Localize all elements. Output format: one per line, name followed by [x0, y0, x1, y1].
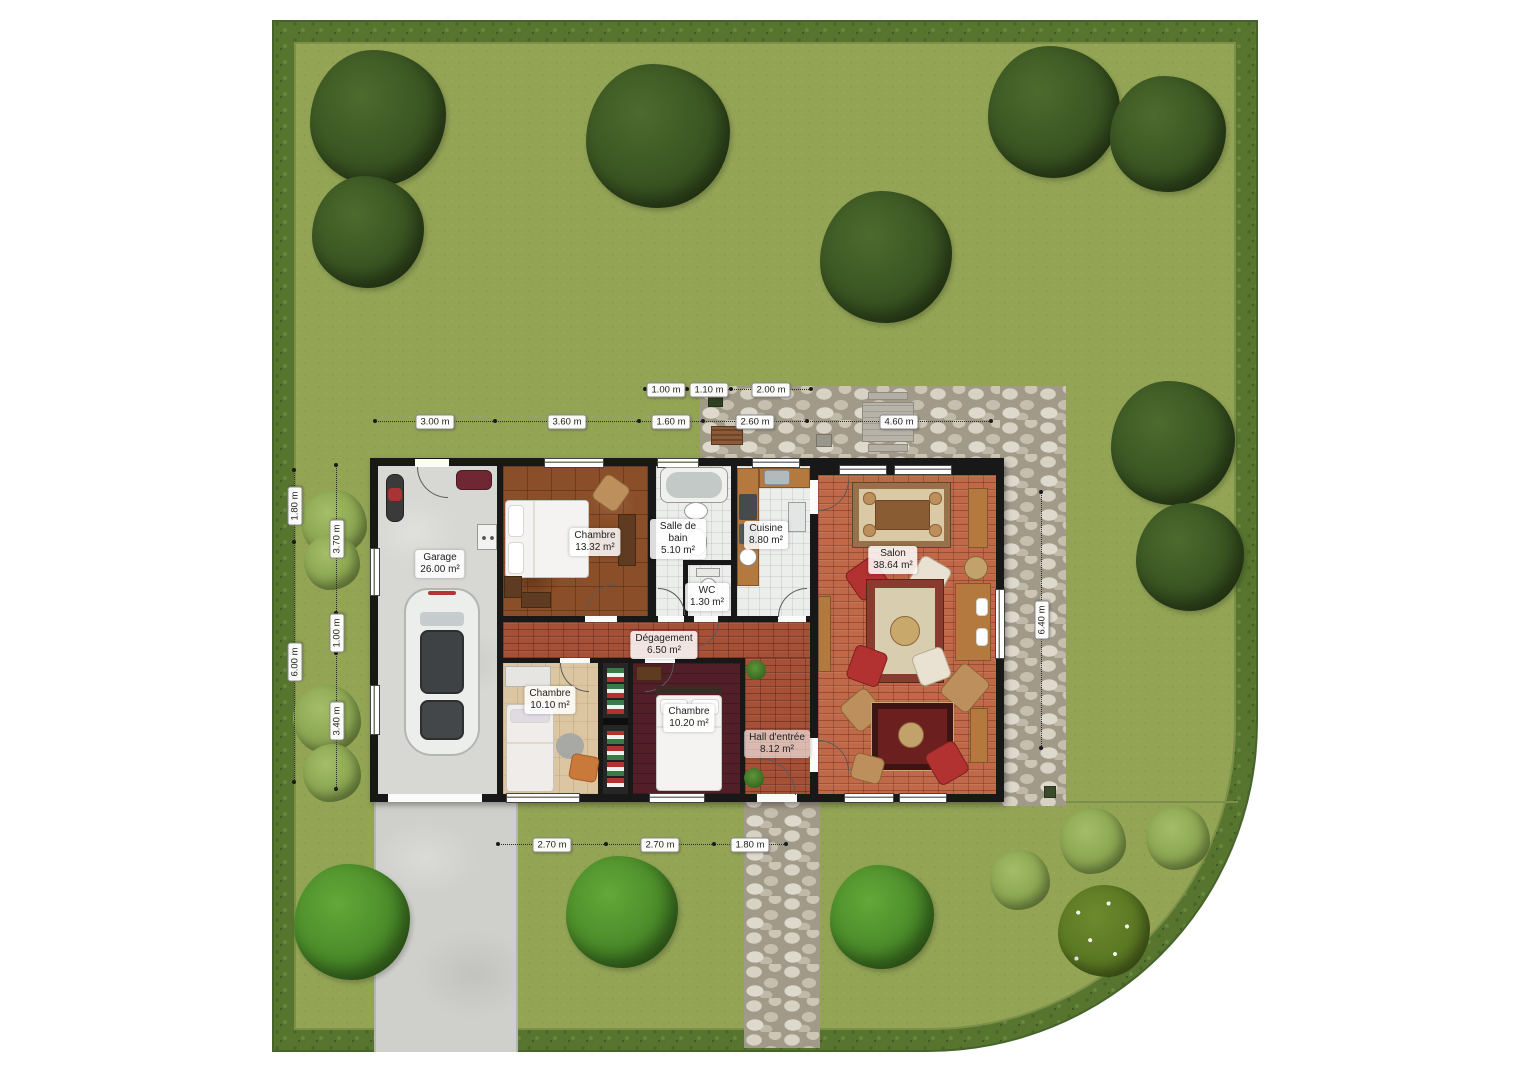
- dim-tick: [1039, 490, 1043, 494]
- pouf-chambre-2: [568, 753, 600, 783]
- salon-console-top-right: [968, 488, 988, 548]
- window-garage-left-2: [371, 686, 379, 734]
- car-taillight: [428, 591, 456, 595]
- bush: [1060, 808, 1126, 874]
- dim-tick: [637, 419, 641, 423]
- wardrobe-divider: [603, 718, 628, 725]
- bush: [303, 744, 361, 802]
- room-name: Salle de bain: [655, 521, 701, 545]
- salon-sofa-bench: [955, 583, 991, 661]
- bush: [990, 850, 1050, 910]
- dimension-label: 2.00 m: [751, 383, 790, 398]
- room-label-chambre-3: Chambre 10.20 m²: [663, 704, 714, 732]
- room-label-salon: Salon 38.64 m²: [868, 546, 917, 574]
- window-garage-left-1: [371, 549, 379, 595]
- headboard-chambre-3: [656, 686, 722, 694]
- door-gap-chambre1: [585, 616, 617, 622]
- room-area: 8.12 m²: [749, 744, 805, 756]
- dim-tick: [604, 842, 608, 846]
- dimension-label: 4.60 m: [879, 415, 918, 430]
- window-bath-top: [658, 459, 698, 467]
- bush: [293, 685, 361, 753]
- dimension-label: 1.00 m: [646, 383, 685, 398]
- terrace-right: [1000, 386, 1066, 806]
- salon-dining-table: [875, 500, 930, 530]
- room-label-chambre-2: Chambre 10.10 m²: [524, 686, 575, 714]
- mat-chambre-1b: [521, 592, 551, 608]
- room-area: 6.50 m²: [635, 645, 692, 657]
- dim-tick: [809, 387, 813, 391]
- room-area: 13.32 m²: [574, 542, 615, 554]
- bath-sink: [684, 502, 708, 520]
- dim-tick: [1039, 746, 1043, 750]
- garage-storage-red: [456, 470, 492, 490]
- dimension-label: 2.70 m: [532, 838, 571, 853]
- room-label-degagement: Dégagement 6.50 m²: [630, 631, 697, 659]
- dim-tick: [496, 842, 500, 846]
- room-name: Chambre: [668, 706, 709, 718]
- dresser-chambre-1: [618, 514, 636, 566]
- car-roof-glass: [420, 630, 464, 694]
- window-chambre2-bottom: [507, 794, 579, 802]
- room-label-salle-de-bain: Salle de bain 5.10 m²: [650, 519, 706, 559]
- window-chambre1-top: [545, 459, 603, 467]
- door-gap-salon-bottom: [810, 738, 818, 772]
- window-cuisine-top: [753, 459, 799, 467]
- wc-wall-top: [683, 560, 731, 565]
- room-label-chambre-1: Chambre 13.32 m²: [569, 528, 620, 556]
- bed-fold-chambre-1: [533, 501, 535, 577]
- terrace-drain: [1044, 786, 1056, 798]
- window-salon-bottom-1: [845, 794, 893, 802]
- dimension-label: 1.60 m: [651, 415, 690, 430]
- salon-dining-chair-3: [863, 524, 876, 537]
- dim-tick: [334, 463, 338, 467]
- car-rear-glass: [420, 700, 464, 740]
- dimension-label: 3.70 m: [330, 519, 345, 558]
- dim-tick: [712, 842, 716, 846]
- kitchen-hob: [739, 548, 757, 566]
- dimension-label: 2.60 m: [735, 415, 774, 430]
- salon-dining-chair-2: [929, 492, 942, 505]
- room-name: Chambre: [574, 530, 615, 542]
- wc-toilet-tank: [696, 568, 720, 577]
- salon-sofa-cushion-1: [976, 598, 988, 616]
- mat-chambre-1a: [504, 576, 522, 598]
- dimension-label: 1.80 m: [730, 838, 769, 853]
- dimension-label: 6.40 m: [1035, 600, 1050, 639]
- dim-tick: [989, 419, 993, 423]
- dim-tick: [373, 419, 377, 423]
- room-area: 5.10 m²: [655, 545, 701, 557]
- dim-tick: [701, 419, 705, 423]
- window-salon-top-2: [895, 466, 951, 474]
- kitchen-sink: [764, 470, 790, 485]
- dim-tick: [784, 842, 788, 846]
- dim-tick: [292, 468, 296, 472]
- window-salon-bottom-2: [900, 794, 946, 802]
- room-area: 38.64 m²: [873, 560, 912, 572]
- terrace-grill: [816, 434, 832, 447]
- dresser-chambre-3: [636, 666, 662, 681]
- dimension-label: 1.00 m: [330, 613, 345, 652]
- dim-tick: [334, 787, 338, 791]
- bush: [1146, 806, 1210, 870]
- dimension-label: 1.80 m: [288, 486, 303, 525]
- room-area: 26.00 m²: [420, 564, 459, 576]
- dimension-label: 3.60 m: [547, 415, 586, 430]
- dimension-label: 1.10 m: [689, 383, 728, 398]
- room-name: Dégagement: [635, 633, 692, 645]
- room-label-garage: Garage 26.00 m²: [415, 550, 464, 578]
- dim-tick: [292, 780, 296, 784]
- pillow-chambre-1b: [508, 542, 524, 574]
- picnic-bench-bottom: [868, 444, 908, 452]
- room-name: Hall d'entrée: [749, 732, 805, 744]
- window-chambre3-bottom: [650, 794, 704, 802]
- room-area: 10.20 m²: [668, 718, 709, 730]
- room-name: Cuisine: [749, 523, 783, 535]
- dim-tick: [292, 540, 296, 544]
- window-salon-top-1: [840, 466, 886, 474]
- dresser-chambre-2: [505, 666, 551, 687]
- window-salon-right: [996, 590, 1004, 658]
- wardrobe-items-bottom: [607, 731, 624, 787]
- stone-path: [744, 794, 820, 1048]
- door-gap-bain: [658, 616, 684, 622]
- dim-tick: [805, 419, 809, 423]
- dim-tick: [685, 387, 689, 391]
- front-door-gap: [757, 794, 797, 802]
- room-name: Garage: [420, 552, 459, 564]
- property-line: [1062, 801, 1238, 803]
- kitchen-fridge: [788, 502, 806, 532]
- hall-plant-bottom: [744, 768, 764, 788]
- room-label-hall-entree: Hall d'entrée 8.12 m²: [744, 730, 810, 758]
- garage-cabinet: [477, 524, 497, 550]
- salon-sofa-cushion-2: [976, 628, 988, 646]
- salon-dining-chair-1: [863, 492, 876, 505]
- dimension-label: 6.00 m: [288, 642, 303, 681]
- room-area: 8.80 m²: [749, 535, 783, 547]
- pillow-chambre-1a: [508, 505, 524, 537]
- dim-tick: [729, 387, 733, 391]
- motorcycle-tank: [388, 488, 402, 501]
- salon-dining-chair-4: [929, 524, 942, 537]
- salon-bottom-table: [898, 722, 924, 748]
- salon-center-table: [890, 616, 920, 646]
- car-windshield: [420, 612, 464, 626]
- room-label-cuisine: Cuisine 8.80 m²: [744, 521, 788, 549]
- salon-stool: [964, 556, 988, 580]
- room-label-wc: WC 1.30 m²: [685, 583, 729, 611]
- dimension-label: 3.00 m: [415, 415, 454, 430]
- bathtub-basin: [666, 472, 722, 498]
- room-name: WC: [690, 585, 724, 597]
- salon-door-leaf: [818, 596, 831, 672]
- picnic-bench-top: [868, 392, 908, 400]
- garage-vehicle-door: [388, 794, 482, 802]
- salon-side-table: [970, 708, 988, 763]
- flowering-bush: [1058, 885, 1150, 977]
- wardrobe-items-top: [607, 668, 624, 714]
- bed-fold-chambre-2: [507, 742, 553, 744]
- dimension-label: 2.70 m: [640, 838, 679, 853]
- dim-tick: [493, 419, 497, 423]
- hall-plant-top: [746, 660, 766, 680]
- room-name: Chambre: [529, 688, 570, 700]
- room-name: Salon: [873, 548, 912, 560]
- door-gap-salon-top: [810, 480, 818, 514]
- garage-entry-gap: [415, 459, 449, 467]
- dimension-label: 3.40 m: [330, 701, 345, 740]
- floor-plan-scene: Garage 26.00 m² Chambre 13.32 m² Salle d…: [0, 0, 1536, 1087]
- kitchen-oven: [739, 494, 757, 520]
- room-area: 10.10 m²: [529, 700, 570, 712]
- room-area: 1.30 m²: [690, 597, 724, 609]
